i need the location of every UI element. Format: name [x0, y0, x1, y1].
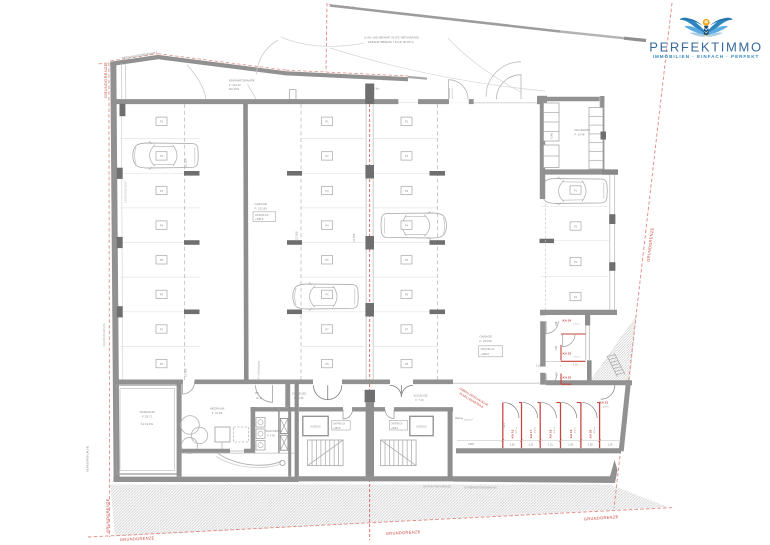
svg-text:4.34 m²: 4.34 m² [533, 426, 536, 433]
svg-text:GARAGE: GARAGE [480, 335, 492, 339]
svg-text:KA 18: KA 18 [549, 429, 553, 438]
svg-text:F: 11.89: F: 11.89 [294, 396, 304, 400]
svg-text:IMMOBILIEN · EINFACH · PERFEKT: IMMOBILIEN · EINFACH · PERFEKT [653, 54, 760, 59]
svg-text:6.366: 6.366 [551, 132, 554, 139]
svg-text:F: 233.60: F: 233.60 [480, 339, 493, 343]
svg-text:WC: WC [255, 392, 259, 395]
svg-text:KA 23: KA 23 [563, 351, 572, 355]
svg-text:KA 17: KA 17 [529, 429, 533, 438]
svg-text:ÖL 19.00L: ÖL 19.00L [141, 422, 154, 426]
svg-text:1.30: 1.30 [568, 443, 573, 446]
svg-text:P2: P2 [325, 154, 329, 158]
svg-text:AUFZUG: AUFZUG [310, 426, 320, 429]
svg-text:F: 19.48: F: 19.48 [575, 133, 585, 137]
svg-text:1.56: 1.56 [555, 321, 558, 326]
svg-text:P4: P4 [574, 295, 578, 299]
svg-text:F: 21.69: F: 21.69 [212, 411, 223, 415]
svg-text:P8: P8 [160, 362, 164, 366]
svg-text:OKFFB-CA: OKFFB-CA [333, 423, 345, 426]
svg-text:SCHLEUSE: SCHLEUSE [414, 393, 428, 397]
svg-text:KA 16: KA 16 [510, 429, 514, 438]
svg-text:P5: P5 [325, 258, 329, 262]
svg-text:P8: P8 [405, 362, 409, 366]
svg-text:P2: P2 [574, 224, 578, 228]
svg-text:KA 21: KA 21 [600, 401, 609, 405]
svg-text:OK PKW-TIEFGARAGE: OK PKW-TIEFGARAGE [423, 484, 451, 488]
svg-text:VERKEHRSFLÄCHE: VERKEHRSFLÄCHE [86, 445, 90, 472]
svg-text:P7: P7 [160, 327, 164, 331]
svg-text:P6: P6 [160, 293, 164, 297]
svg-text:3.8m: 3.8m [374, 88, 380, 91]
svg-text:+488.8: +488.8 [391, 428, 399, 430]
svg-text:P4: P4 [325, 223, 329, 227]
svg-text:GARAGE: GARAGE [255, 202, 267, 206]
svg-text:P4: P4 [405, 223, 409, 227]
svg-text:1.80: 1.80 [555, 345, 558, 350]
svg-text:F: 4.90: F: 4.90 [267, 434, 275, 437]
svg-text:1.28: 1.28 [588, 443, 593, 446]
svg-text:EINFAHRTSBREITE 7.30 (2F 08 MD: EINFAHRTSBREITE 7.30 (2F 08 MD V) [368, 40, 414, 44]
svg-text:2.72 m²: 2.72 m² [574, 323, 581, 326]
svg-text:KA 20: KA 20 [588, 429, 592, 438]
svg-text:KA 24: KA 24 [563, 318, 572, 322]
svg-text:NACHBARGRENZE: NACHBARGRENZE [102, 323, 106, 347]
svg-text:1.20: 1.20 [536, 364, 541, 367]
svg-text:P5: P5 [160, 258, 164, 262]
svg-text:F: 121.80: F: 121.80 [255, 207, 268, 211]
svg-text:TG-PERIMETERDÄMMUNG: TG-PERIMETERDÄMMUNG [464, 485, 497, 489]
svg-text:WASCHRAUM: WASCHRAUM [266, 430, 283, 433]
svg-text:KA 19: KA 19 [569, 429, 573, 438]
svg-text:4.25 m²: 4.25 m² [593, 426, 596, 433]
svg-text:1.31: 1.31 [548, 443, 553, 446]
svg-text:UNTERGESCHOSS: UNTERGESCHOSS [125, 181, 128, 203]
svg-text:KELLERABT.: KELLERABT. [575, 128, 591, 132]
svg-text:TANKRAUM: TANKRAUM [139, 410, 155, 414]
svg-text:KA 22: KA 22 [563, 376, 572, 380]
svg-text:P3: P3 [574, 260, 578, 264]
svg-text:F: 7.10: F: 7.10 [416, 398, 425, 402]
svg-text:SCHLEUSE: SCHLEUSE [292, 392, 306, 396]
svg-text:21.508: 21.508 [295, 231, 299, 240]
svg-text:2x AN- UND ABFAHRT IN KFZ-TIEF: 2x AN- UND ABFAHRT IN KFZ-TIEFGARAGEN [364, 36, 419, 40]
svg-text:2.46 m²: 2.46 m² [572, 380, 579, 383]
svg-text:P4: P4 [160, 223, 164, 227]
svg-text:P7: P7 [405, 327, 409, 331]
svg-text:P1: P1 [160, 120, 164, 124]
svg-text:HEIZRAUM: HEIZRAUM [210, 407, 225, 411]
svg-text:1.30: 1.30 [510, 443, 515, 446]
svg-text:OKFFB-CA: OKFFB-CA [481, 347, 495, 351]
svg-text:21.508: 21.508 [352, 233, 356, 242]
svg-text:4.31 m²: 4.31 m² [553, 426, 556, 433]
svg-text:OKFFB-CA: OKFFB-CA [391, 423, 403, 426]
svg-text:10.10: 10.10 [256, 397, 263, 400]
svg-text:P3: P3 [325, 189, 329, 193]
svg-text:P6: P6 [405, 293, 409, 297]
svg-text:F: 28.71: F: 28.71 [142, 415, 153, 419]
svg-text:21.508: 21.508 [183, 368, 187, 377]
svg-text:2.72 m²: 2.72 m² [574, 356, 581, 359]
svg-text:P7: P7 [325, 327, 329, 331]
svg-text:PERFEKTIMMO: PERFEKTIMMO [649, 40, 763, 55]
svg-text:3.21: 3.21 [503, 423, 506, 428]
svg-text:8.87 m²: 8.87 m² [603, 405, 610, 408]
svg-text:P2: P2 [160, 154, 164, 158]
svg-text:R05 Kellerabgang: R05 Kellerabgang [258, 360, 261, 381]
svg-text:+488.8: +488.8 [255, 217, 264, 221]
svg-text:GRUNDGRENZE: GRUNDGRENZE [103, 63, 108, 98]
svg-text:1.71: 1.71 [555, 371, 558, 376]
svg-text:P3: P3 [160, 189, 164, 193]
svg-text:P1: P1 [574, 188, 578, 192]
svg-text:AUFZUG: AUFZUG [416, 426, 426, 429]
svg-text:P1: P1 [325, 120, 329, 124]
svg-text:OKFFB-CA: OKFFB-CA [255, 213, 269, 217]
svg-text:4.30 m²: 4.30 m² [573, 426, 576, 433]
svg-text:3.607: 3.607 [468, 443, 475, 446]
svg-text:1.01: 1.01 [573, 363, 578, 366]
svg-text:P6: P6 [325, 293, 329, 297]
svg-text:P2: P2 [405, 154, 409, 158]
svg-text:P5: P5 [405, 258, 409, 262]
svg-text:21.508: 21.508 [183, 158, 187, 167]
svg-text:+488.8: +488.8 [481, 352, 490, 356]
svg-text:28.64 m²: 28.64 m² [464, 418, 473, 421]
svg-text:1.20: 1.20 [608, 443, 613, 446]
svg-text:P8: P8 [325, 362, 329, 366]
svg-text:P1: P1 [405, 120, 409, 124]
svg-text:Gang: Gang [455, 416, 463, 420]
svg-text:+488.8: +488.8 [333, 428, 341, 430]
svg-text:P3: P3 [405, 189, 409, 193]
svg-text:1.31: 1.31 [528, 443, 533, 446]
svg-text:RA 20%: RA 20% [229, 87, 240, 91]
svg-text:4.27 m²: 4.27 m² [515, 426, 518, 433]
svg-text:GRUNDGRENZE: GRUNDGRENZE [105, 498, 110, 533]
